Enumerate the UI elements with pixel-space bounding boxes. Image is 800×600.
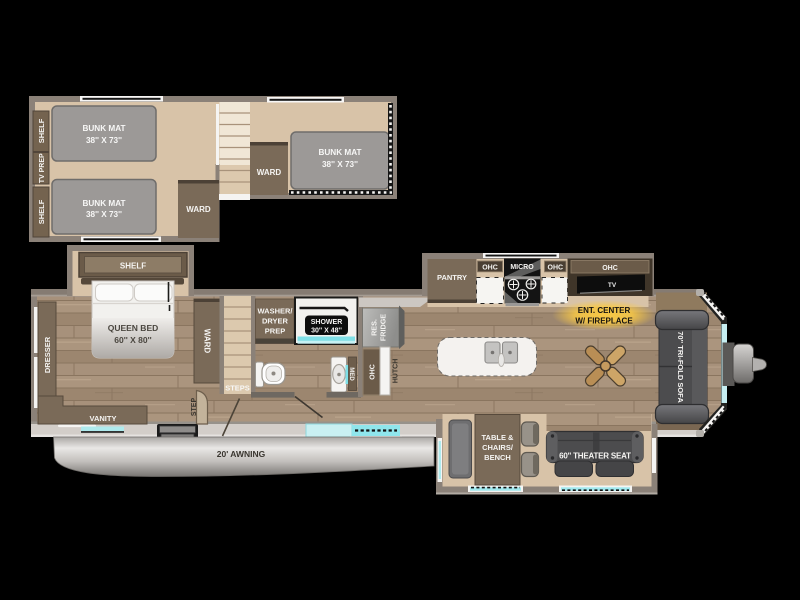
svg-text:BUNK MAT: BUNK MAT xyxy=(82,199,125,208)
svg-text:WARD: WARD xyxy=(257,168,282,177)
svg-text:FRIDGE: FRIDGE xyxy=(379,314,388,341)
svg-text:60'' X 80'': 60'' X 80'' xyxy=(114,335,151,345)
svg-text:PANTRY: PANTRY xyxy=(437,273,467,282)
svg-text:SHELF: SHELF xyxy=(120,262,146,271)
svg-text:SHELF: SHELF xyxy=(37,199,46,224)
svg-text:BUNK MAT: BUNK MAT xyxy=(82,124,125,133)
svg-text:PREP: PREP xyxy=(265,327,285,336)
svg-text:OHC: OHC xyxy=(548,264,564,271)
svg-text:60'' THEATER SEAT: 60'' THEATER SEAT xyxy=(559,452,631,461)
svg-text:DRESSER: DRESSER xyxy=(43,336,52,373)
svg-text:CHAIRS/: CHAIRS/ xyxy=(482,443,514,452)
svg-text:TV: TV xyxy=(608,282,617,289)
svg-text:ENT. CENTER: ENT. CENTER xyxy=(578,306,631,315)
svg-text:WARD: WARD xyxy=(186,205,211,214)
svg-text:SHELF: SHELF xyxy=(37,118,46,143)
svg-text:20' AWNING: 20' AWNING xyxy=(217,449,266,459)
svg-text:VANITY: VANITY xyxy=(90,414,117,423)
svg-text:RES.: RES. xyxy=(370,319,379,336)
svg-text:OHC: OHC xyxy=(482,264,498,271)
svg-text:30'' X 48'': 30'' X 48'' xyxy=(311,328,342,335)
svg-text:SHOWER: SHOWER xyxy=(311,319,343,326)
svg-text:WASHER/: WASHER/ xyxy=(257,307,293,316)
svg-text:WARD: WARD xyxy=(203,329,212,354)
svg-text:MICRO: MICRO xyxy=(510,264,534,271)
svg-text:DRYER: DRYER xyxy=(262,317,289,326)
svg-text:W/ FIREPLACE: W/ FIREPLACE xyxy=(575,317,633,326)
svg-text:STEP: STEP xyxy=(191,398,198,417)
svg-text:OHC: OHC xyxy=(602,265,618,272)
svg-text:QUEEN BED: QUEEN BED xyxy=(108,323,159,333)
svg-text:38'' X 73'': 38'' X 73'' xyxy=(86,210,122,219)
svg-text:38'' X 73'': 38'' X 73'' xyxy=(86,136,122,145)
svg-text:TABLE &: TABLE & xyxy=(482,433,515,442)
svg-text:MED: MED xyxy=(348,367,354,381)
svg-text:OHC: OHC xyxy=(370,364,377,380)
svg-text:BENCH: BENCH xyxy=(484,453,511,462)
svg-text:BUNK MAT: BUNK MAT xyxy=(318,148,361,157)
svg-text:TV PREP: TV PREP xyxy=(39,153,46,183)
svg-text:STEPS: STEPS xyxy=(225,384,250,393)
svg-text:70'' TRI-FOLD SOFA: 70'' TRI-FOLD SOFA xyxy=(676,331,685,403)
svg-text:38'' X 73'': 38'' X 73'' xyxy=(322,160,358,169)
svg-text:HUTCH: HUTCH xyxy=(393,359,400,384)
